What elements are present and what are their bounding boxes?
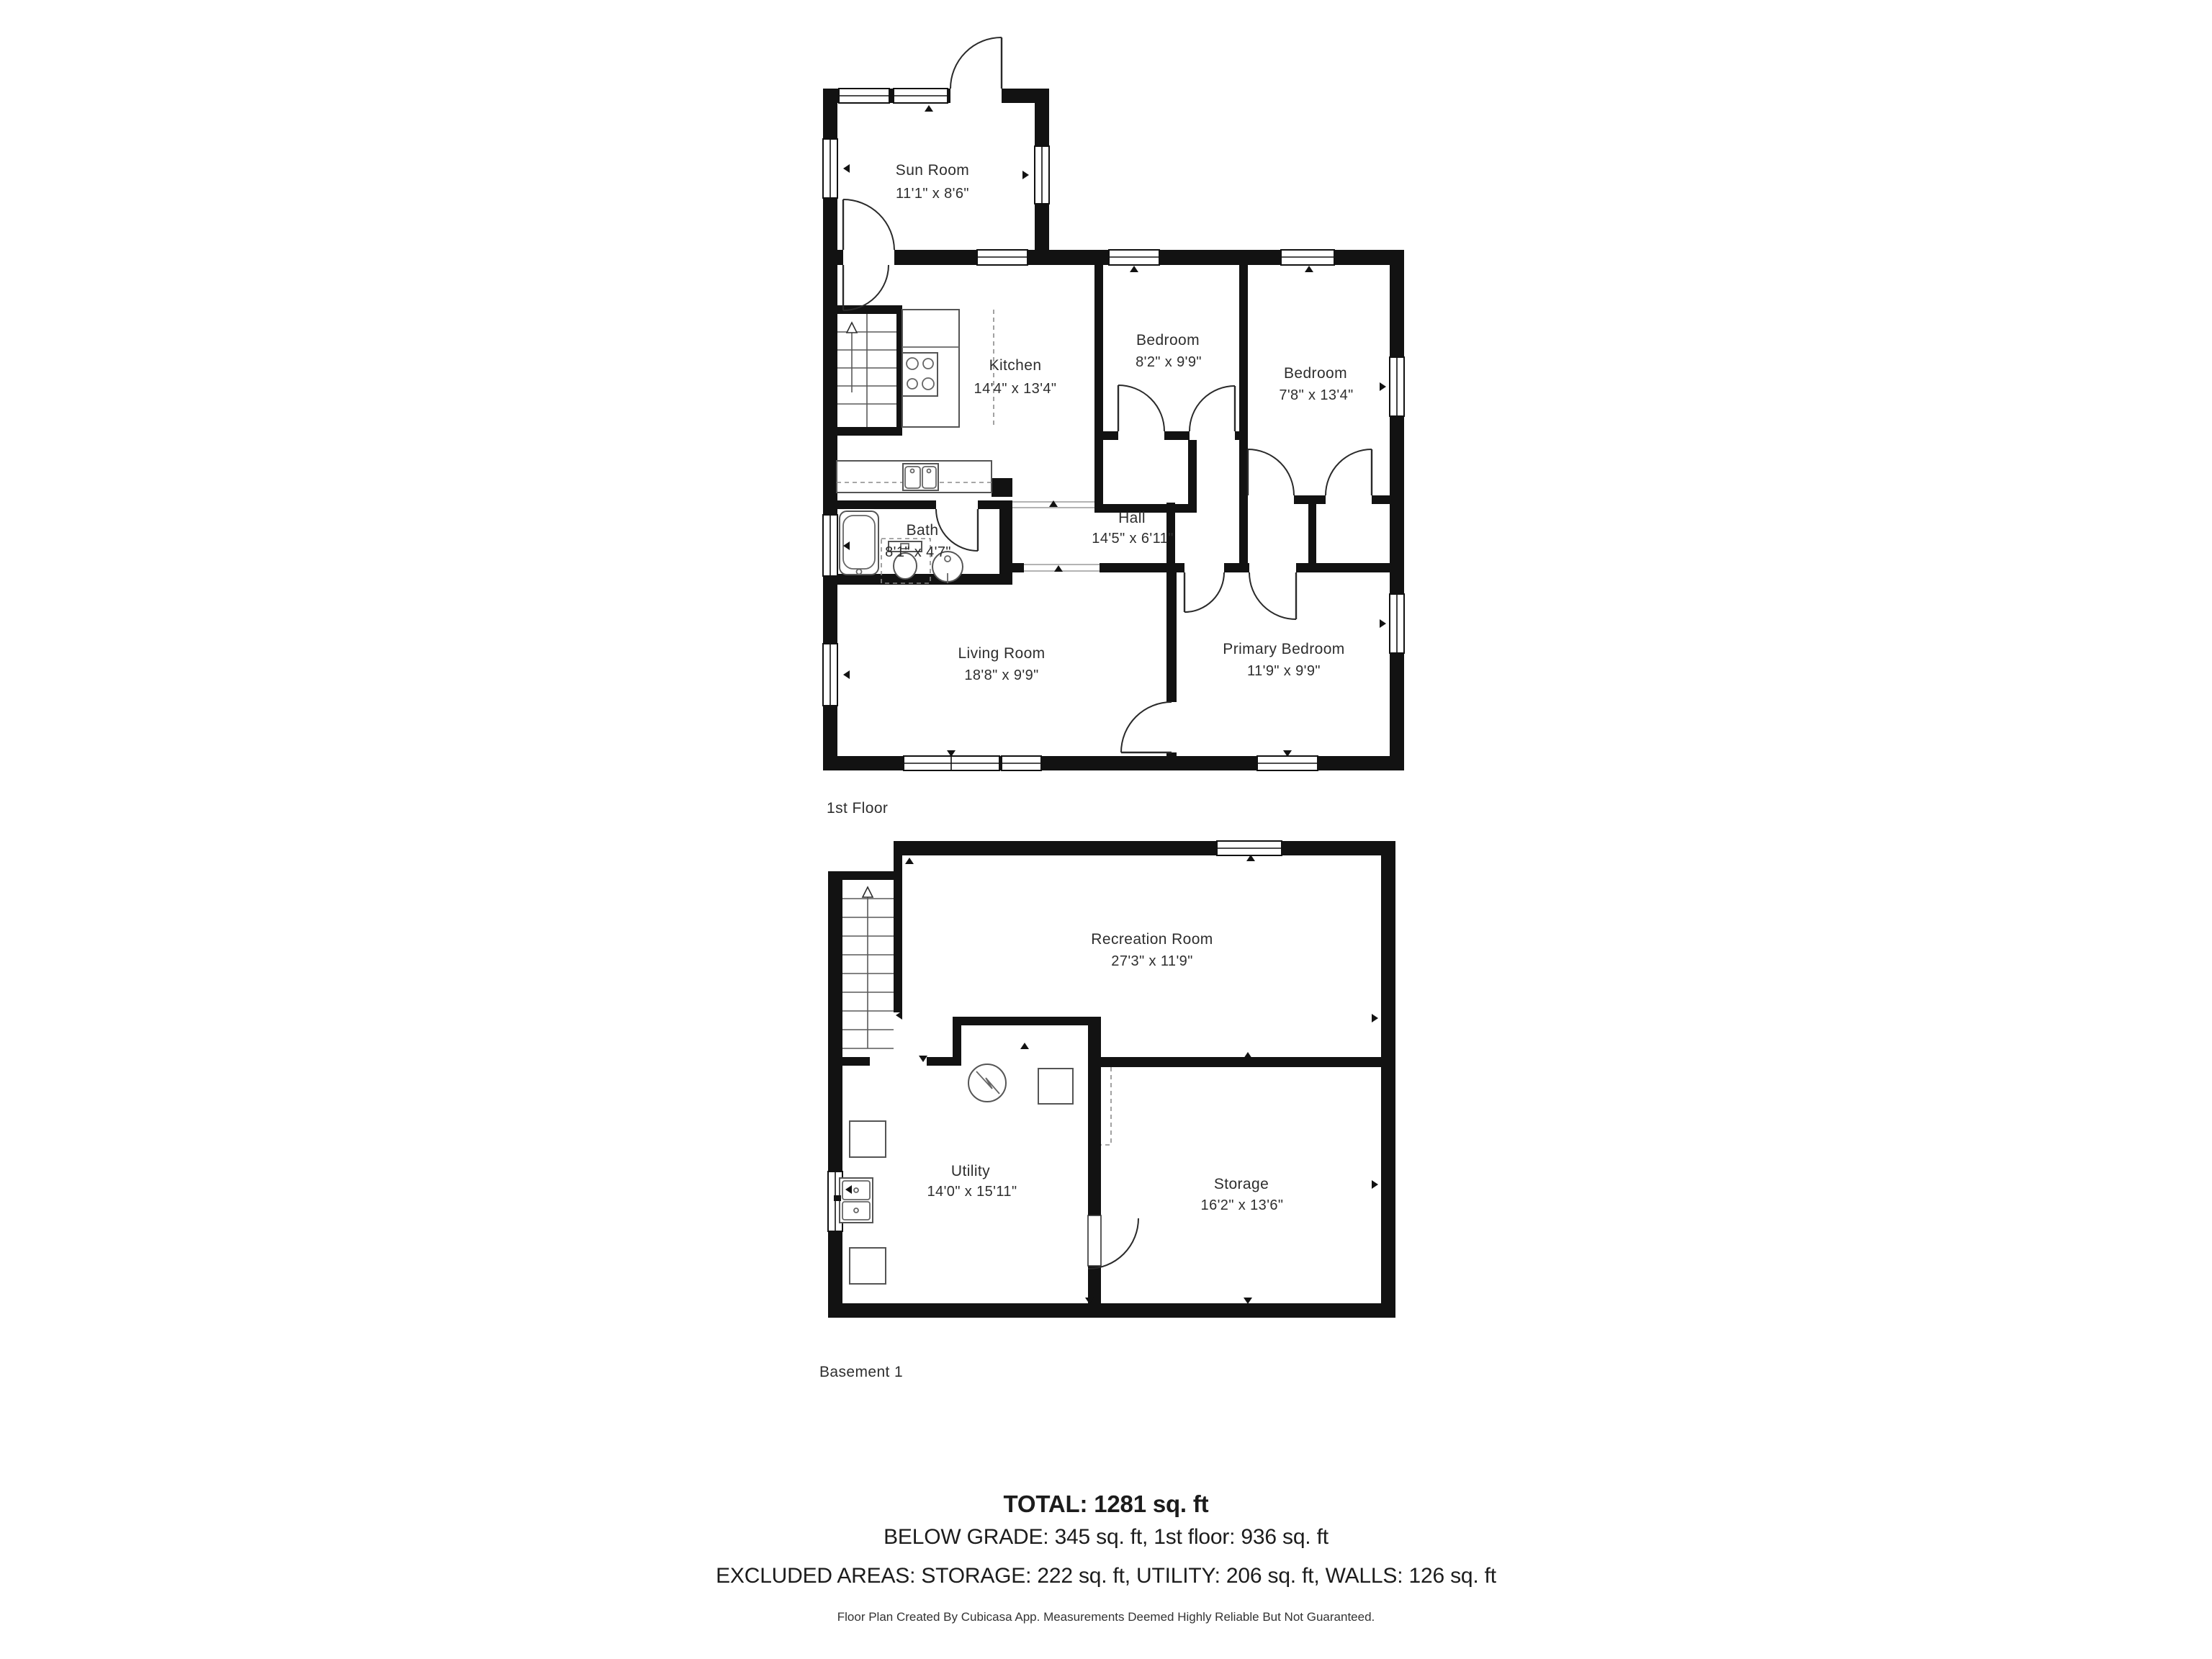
summary-below-grade: BELOW GRADE: 345 sq. ft, 1st floor: 936 … [0, 1525, 2212, 1550]
room-label-utility: Utility [951, 1163, 990, 1179]
staircase-first-floor [837, 314, 896, 427]
window-icon [1390, 594, 1404, 653]
appliance-square-icon [850, 1248, 886, 1284]
room-label-bath: Bath [907, 522, 939, 539]
room-dims-sun-room: 11'1" x 8'6" [896, 186, 969, 202]
window-icon [1257, 756, 1318, 770]
stair-up-arrow-icon [863, 887, 873, 897]
basement-outer-walls [828, 841, 1395, 1318]
water-heater-icon [968, 1064, 1006, 1102]
direction-markers-basement [845, 855, 1378, 1304]
window-icon [1217, 841, 1282, 855]
appliance-square-icon [850, 1121, 886, 1157]
room-dims-hall: 14'5" x 6'11" [1092, 531, 1173, 547]
door-icon-sunroom-to-kitchen [843, 199, 894, 265]
window-icon [823, 515, 837, 576]
room-dims-utility: 14'0" x 15'11" [927, 1184, 1017, 1200]
window-icon [1035, 146, 1049, 204]
first-floor-plan: Sun Room 11'1" x 8'6" Kitchen 14'4" x 13… [823, 37, 1404, 817]
kitchen-counter [837, 461, 992, 493]
door-icon-bedroom2-left [1248, 449, 1294, 504]
stair-up-arrow-icon [847, 323, 857, 392]
door-icon-sunroom-exterior [950, 37, 1002, 103]
bathtub-icon [840, 511, 878, 575]
basement-plan: Recreation Room 27'3" x 11'9" Utility 14… [819, 841, 1395, 1380]
room-label-primary-bedroom: Primary Bedroom [1223, 641, 1344, 657]
window-icon [1002, 756, 1041, 770]
window-icon [823, 644, 837, 706]
room-dims-bedroom-1: 8'2" x 9'9" [1136, 354, 1202, 370]
room-label-hall: Hall [1118, 510, 1146, 526]
door-icon-utility-to-storage [1088, 1215, 1138, 1269]
kitchen-sink-icon [903, 464, 938, 490]
room-label-bedroom-1: Bedroom [1136, 332, 1200, 349]
door-icon-primary-right [1249, 563, 1296, 619]
summary-total: TOTAL: 1281 sq. ft [0, 1491, 2212, 1518]
room-dims-storage: 16'2" x 13'6" [1201, 1197, 1284, 1213]
room-dims-bedroom-2: 7'8" x 13'4" [1279, 387, 1353, 403]
door-icon-vestibule-to-kitchen [843, 265, 889, 310]
window-icon [894, 89, 948, 103]
window-icon [904, 756, 999, 770]
floor-plan-canvas: Sun Room 11'1" x 8'6" Kitchen 14'4" x 13… [0, 0, 2212, 1659]
room-dims-recreation-room: 27'3" x 11'9" [1111, 953, 1192, 969]
room-label-bedroom-2: Bedroom [1284, 365, 1347, 382]
window-icon [1109, 250, 1159, 265]
room-label-recreation-room: Recreation Room [1091, 931, 1213, 948]
door-icon-bedroom1-right [1190, 386, 1235, 440]
room-dims-living-room: 18'8" x 9'9" [964, 667, 1038, 683]
room-label-living-room: Living Room [958, 645, 1045, 662]
room-label-kitchen: Kitchen [989, 357, 1042, 374]
window-icon [1281, 250, 1334, 265]
direction-markers-first-floor [843, 105, 1386, 757]
door-icon-primary-left [1184, 563, 1224, 612]
room-dims-bath: 8'1" x 4'7" [885, 544, 951, 560]
door-icon-bath [936, 500, 978, 551]
footer-disclaimer: Floor Plan Created By Cubicasa App. Meas… [0, 1610, 2212, 1624]
room-dims-primary-bedroom: 11'9" x 9'9" [1247, 663, 1321, 679]
room-label-sun-room: Sun Room [896, 162, 969, 179]
floor-label-1st-floor: 1st Floor [827, 800, 888, 817]
staircase-basement [842, 887, 894, 1048]
window-icon [839, 89, 889, 103]
summary-excluded-areas: EXCLUDED AREAS: STORAGE: 222 sq. ft, UTI… [0, 1564, 2212, 1588]
window-icon [823, 139, 837, 198]
floor-plan-page: Sun Room 11'1" x 8'6" Kitchen 14'4" x 13… [0, 0, 2212, 1659]
door-icon-living-to-primary [1121, 702, 1177, 752]
floor-label-basement-1: Basement 1 [819, 1364, 903, 1380]
laundry-sink-icon [834, 1178, 873, 1223]
room-dims-kitchen: 14'4" x 13'4" [974, 381, 1057, 397]
door-icon-bedroom2-right [1326, 449, 1372, 504]
window-icon [1390, 357, 1404, 416]
appliance-square-icon [1038, 1069, 1073, 1104]
dashed-area-line [1101, 1067, 1111, 1145]
room-label-storage: Storage [1214, 1176, 1269, 1192]
stove-icon [902, 310, 994, 427]
door-icon-bedroom1-left [1118, 385, 1164, 440]
window-icon [977, 250, 1028, 265]
